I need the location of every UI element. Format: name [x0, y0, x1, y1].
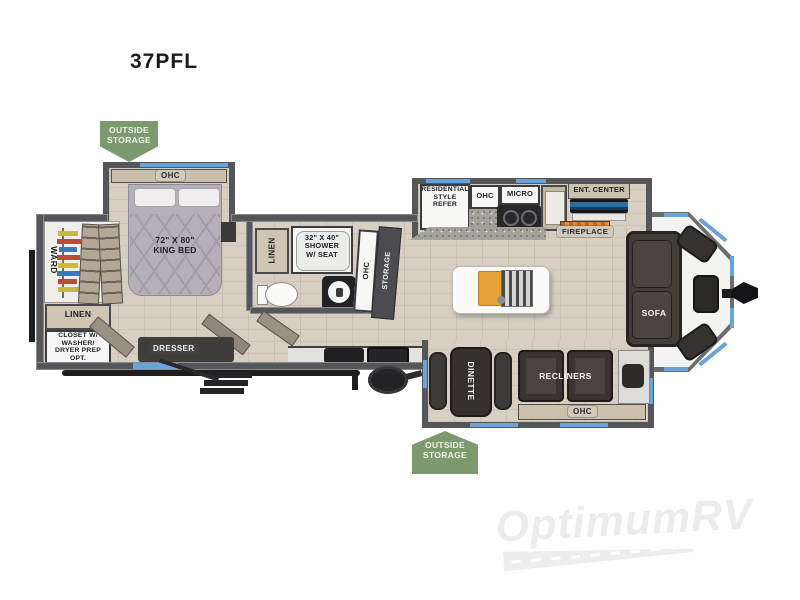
cooktop-burner: [521, 210, 537, 226]
living-ohc-label: OHC: [568, 406, 597, 417]
clothes-item: [57, 255, 80, 260]
front-cap-window-right-upper: [730, 256, 734, 276]
top-wall-mid: [231, 214, 418, 222]
clothes-item: [57, 271, 81, 276]
kitchen-slide-window-right: [516, 179, 546, 183]
bath-faucet: [336, 288, 343, 297]
living-slide-window-bottom-1: [470, 423, 518, 427]
bed-pillow-right: [178, 188, 220, 207]
bath-linen-label: LINEN: [268, 231, 277, 271]
ent-center-shelf: [572, 213, 626, 221]
bedroom-ohc-label: OHC: [156, 170, 185, 181]
outside-griddle: [368, 366, 408, 394]
rear-wall: [36, 214, 44, 370]
floorplan-model-title: 37PFL: [130, 50, 198, 74]
clothes-item: [58, 279, 77, 284]
bedroom-bath-wall: [246, 221, 253, 311]
front-cap-window-right-lower: [730, 308, 734, 328]
outside-storage-badge-bottom: OUTSIDE STORAGE: [412, 431, 478, 474]
dresser-label: DRESSER: [148, 343, 199, 354]
floorplan-page: 37PFL OUTSIDE STORAGE OHC 72" X 80" KING…: [0, 0, 800, 600]
king-bed-label: 72" X 80" KING BED: [128, 236, 222, 255]
entry-step: [204, 380, 248, 386]
bedroom-slide-window: [140, 163, 228, 167]
kitchen-counter: [410, 227, 546, 240]
galley-sink-left: [324, 348, 364, 363]
clothes-item: [57, 239, 81, 244]
hitch-coupler: [732, 282, 758, 304]
dinette-label: DINETTE: [466, 351, 476, 411]
bedroom-nightstand: [221, 222, 236, 242]
dinette-bench-left: [429, 352, 447, 410]
living-slide-window-left-wall: [423, 360, 427, 388]
island-faucet: [497, 296, 505, 304]
clothes-item: [58, 263, 78, 268]
top-wall-rear: [36, 214, 108, 222]
front-cap-window-top: [664, 213, 688, 217]
recliners-label: RECLINERS: [518, 371, 613, 381]
clothes-item: [58, 287, 79, 292]
kitchen-pantry-shelf: [545, 191, 565, 225]
grab-handle: [352, 370, 358, 390]
refrigerator-label: RESIDENTIAL STYLE REFER: [420, 186, 470, 209]
front-cap-window-bottom: [664, 367, 688, 371]
end-table-item: [622, 364, 644, 388]
toilet-bowl: [265, 282, 298, 307]
dinette-bench-right: [494, 352, 512, 410]
sofa-label: SOFA: [630, 308, 678, 318]
island-sink: [501, 270, 533, 307]
tv: [570, 199, 628, 213]
clothes-item: [59, 247, 77, 252]
cooktop-burner: [503, 210, 519, 226]
outside-storage-badge-top: OUTSIDE STORAGE: [100, 121, 158, 162]
shower-label: 32" X 40" SHOWER W/ SEAT: [291, 234, 353, 259]
sofa-cushion-top: [632, 240, 672, 288]
watermark-text: OptimumRV: [494, 488, 786, 552]
front-console: [693, 275, 719, 313]
kitchen-slide-window-left: [426, 179, 470, 183]
bottom-wall: [36, 362, 428, 370]
microwave-label: MICRO: [500, 190, 540, 198]
entry-step: [200, 388, 244, 394]
fireplace-label: FIREPLACE: [557, 226, 613, 237]
bed-pillow-left: [134, 188, 176, 207]
optimumrv-watermark: OptimumRV: [494, 488, 787, 573]
griddle-bracket: [406, 370, 423, 380]
rear-bumper: [29, 250, 35, 342]
ent-center-label: ENT. CENTER: [568, 186, 630, 194]
wardrobe-shelves-right: [98, 224, 123, 305]
kitchen-ohc-label: OHC: [470, 192, 500, 200]
clothes-item: [58, 231, 78, 236]
living-slide-window-bottom-2: [560, 423, 608, 427]
